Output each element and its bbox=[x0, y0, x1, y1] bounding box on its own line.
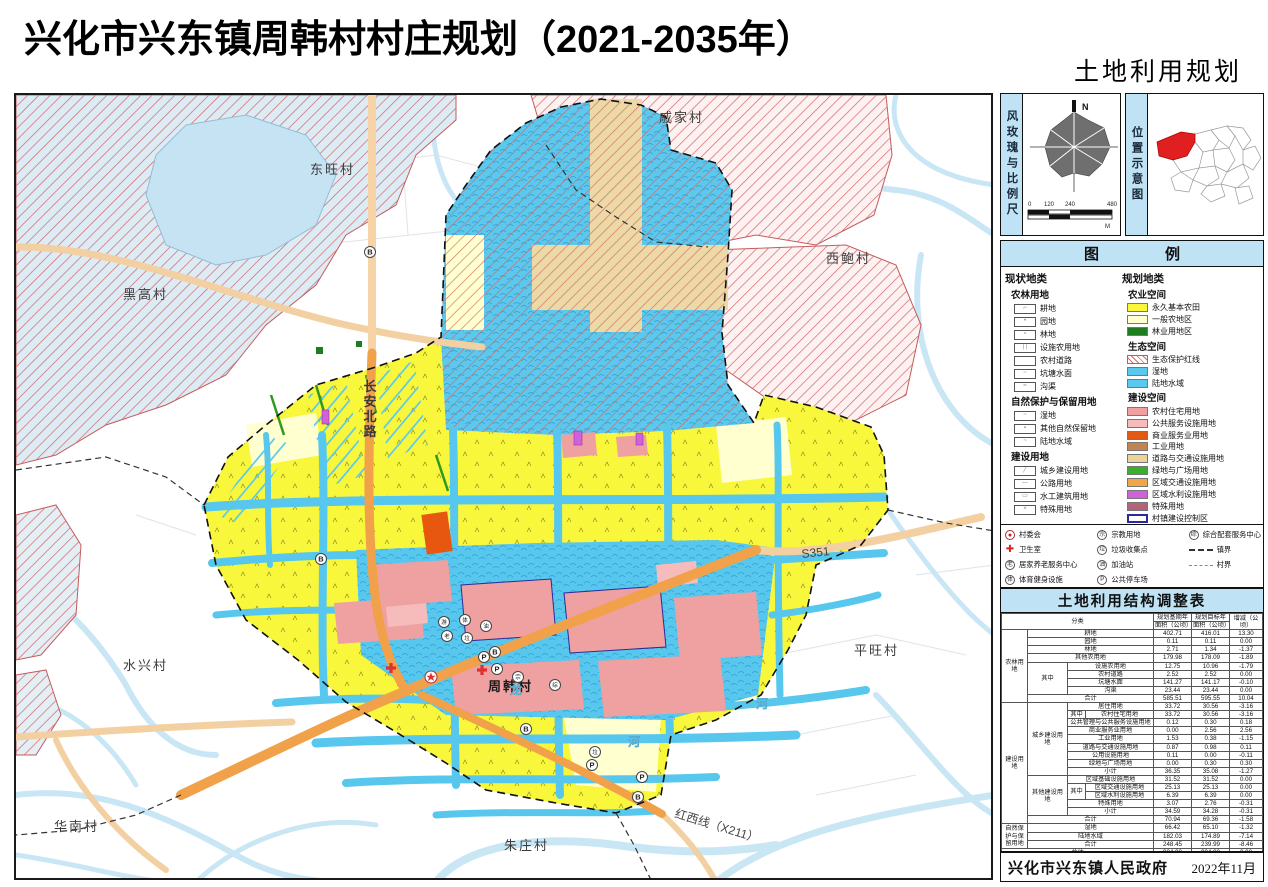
legend-point-item: 老居家养老服务中心 bbox=[1005, 559, 1097, 571]
table-cell: -1.37 bbox=[1230, 646, 1263, 654]
legend-group-title: 农业空间 bbox=[1128, 287, 1260, 301]
table-cell: 公共管理与公共服务设施用地 bbox=[1068, 719, 1154, 727]
table-cell: 湿地 bbox=[1028, 824, 1154, 832]
legend-item: 陆地水域 bbox=[1127, 377, 1260, 389]
table-cell: 0.30 bbox=[1192, 719, 1230, 727]
land-use-table-panel: 土地利用结构调整表 分类规划基期年规划目标年增减（公顷）面积（公顷）面积（公顷）… bbox=[1000, 588, 1264, 852]
table-cell: -1.15 bbox=[1230, 735, 1263, 743]
table-cell: 坑塘水面 bbox=[1068, 678, 1154, 686]
location-panel-body bbox=[1147, 94, 1263, 235]
table-cell: 0.00 bbox=[1230, 638, 1263, 646]
legend-item: 农村住宅用地 bbox=[1127, 405, 1260, 417]
legend-swatch: ⌐ bbox=[1014, 304, 1036, 314]
scale-tick: 120 bbox=[1044, 202, 1055, 208]
table-row: 林地2.711.34-1.37 bbox=[1002, 646, 1263, 654]
map-river-label: 龙 bbox=[510, 682, 522, 697]
table-row: 自然保护与保留用地湿地66.4265.10-1.32 bbox=[1002, 824, 1263, 832]
table-cell: 402.71 bbox=[1154, 630, 1192, 638]
legend-point-label: 村委会 bbox=[1019, 530, 1041, 540]
legend-point-symbol bbox=[1189, 549, 1213, 551]
scale-tick: 0 bbox=[1028, 202, 1032, 208]
map-point-facility: 宗 bbox=[513, 672, 524, 683]
table-cell: 0.12 bbox=[1154, 719, 1192, 727]
table-cell: 34.28 bbox=[1192, 808, 1230, 816]
legend-point-symbols: ●村委会✚卫生室老居家养老服务中心体体育健身设施游小游园/广场宗宗教用地垃垃圾收… bbox=[1001, 524, 1263, 588]
legend-swatch: ~ bbox=[1014, 437, 1036, 447]
table-row: 陆地水域182.03174.89-7.14 bbox=[1002, 832, 1263, 840]
table-cell: 其中 bbox=[1068, 783, 1086, 799]
legend-title-right: 例 bbox=[1165, 243, 1180, 264]
legend-points-column: 综综合配套服务中心镇界村界 bbox=[1189, 529, 1261, 588]
table-cell: 0.87 bbox=[1154, 743, 1192, 751]
legend-planned-title: 规划地类 bbox=[1122, 271, 1260, 286]
legend-item-label: 陆地水域 bbox=[1040, 436, 1072, 447]
legend-swatch bbox=[1127, 367, 1148, 376]
page-title: 兴化市兴东镇周韩村村庄规划（2021-2035年） bbox=[24, 8, 814, 63]
table-cell: 园地 bbox=[1028, 638, 1154, 646]
legend-swatch bbox=[1014, 356, 1036, 366]
legend-item: ~坑塘水面 bbox=[1014, 367, 1122, 380]
table-row: 其他建设用地区域基础设施用地31.5231.520.00 bbox=[1002, 775, 1263, 783]
legend-point-symbol bbox=[1189, 565, 1213, 566]
legend-current-title: 现状地类 bbox=[1005, 271, 1122, 286]
table-cell: 0.00 bbox=[1230, 670, 1263, 678]
legend-swatch: ~ bbox=[1014, 369, 1036, 379]
legend-item: ~陆地水域 bbox=[1014, 435, 1122, 448]
location-minimap bbox=[1147, 94, 1263, 234]
footer-panel: 兴化市兴东镇人民政府 2022年11月 bbox=[1000, 852, 1264, 882]
table-cell: 其他建设用地 bbox=[1028, 775, 1068, 815]
legend-point-symbol: 宗 bbox=[1097, 530, 1107, 540]
legend-item-label: 农村住宅用地 bbox=[1152, 406, 1200, 417]
map-village-label: 戚家村 bbox=[659, 110, 704, 125]
legend-point-item: 垃垃圾收集点 bbox=[1097, 544, 1188, 556]
table-cell: 耕地 bbox=[1028, 630, 1154, 638]
table-cell: -3.16 bbox=[1230, 703, 1263, 711]
table-row: 合计585.51595.5510.04 bbox=[1002, 694, 1263, 702]
table-cell: 23.44 bbox=[1192, 686, 1230, 694]
table-cell: 0.00 bbox=[1230, 775, 1263, 783]
legend-item-label: 其他自然保留地 bbox=[1040, 423, 1096, 434]
legend-point-item: P公共停车场 bbox=[1097, 574, 1188, 586]
table-cell: -0.31 bbox=[1230, 800, 1263, 808]
legend-point-label: 卫生室 bbox=[1019, 545, 1041, 555]
map-point-facility: 油 bbox=[481, 621, 492, 632]
legend-item-label: 农村道路 bbox=[1040, 355, 1072, 366]
svg-text:P: P bbox=[639, 773, 644, 782]
map-point-facility: 垃 bbox=[462, 633, 473, 644]
map-point-parking: P bbox=[587, 760, 598, 771]
issue-date: 2022年11月 bbox=[1191, 858, 1256, 877]
table-title: 土地利用结构调整表 bbox=[1001, 589, 1263, 613]
legend-item-label: 商业服务业用地 bbox=[1152, 430, 1208, 441]
legend-planned-column: 规划地类 农业空间永久基本农田一般农地区林业用地区生态空间生态保护红线湿地陆地水… bbox=[1122, 270, 1260, 524]
legend-item-label: 村镇建设控制区 bbox=[1152, 513, 1208, 524]
compass-panel-body: N 0120240480 M bbox=[1022, 94, 1120, 235]
legend-swatch: — bbox=[1014, 479, 1036, 489]
legend-item: —公路用地 bbox=[1014, 477, 1122, 490]
svg-text:垃: 垃 bbox=[592, 748, 598, 756]
table-cell: 陆地水域 bbox=[1028, 832, 1154, 840]
legend-panel: 图 例 现状地类 农林用地⌐耕地•园地∘林地| |设施农用地农村道路~坑塘水面≈… bbox=[1000, 240, 1264, 588]
compass-scale-panel: 风玫瑰与比例尺 N 0120240480 M bbox=[1000, 93, 1121, 236]
legend-point-label: 村界 bbox=[1217, 560, 1232, 570]
legend-item: 生态保护红线 bbox=[1127, 354, 1260, 366]
table-cell: 农村住宅用地 bbox=[1086, 711, 1154, 719]
legend-item-label: 工业用地 bbox=[1152, 441, 1184, 452]
legend-swatch bbox=[1127, 327, 1148, 336]
legend-item-label: 公共服务设施用地 bbox=[1152, 418, 1216, 429]
legend-item-label: 设施农用地 bbox=[1040, 342, 1080, 353]
table-cell: 2.56 bbox=[1230, 727, 1263, 735]
table-cell: 2.71 bbox=[1154, 646, 1192, 654]
map-village-label: 朱庄村 bbox=[504, 838, 549, 853]
legend-swatch: | | bbox=[1014, 343, 1036, 353]
legend-group-title: 农林用地 bbox=[1011, 287, 1122, 301]
svg-text:体: 体 bbox=[462, 616, 468, 624]
table-cell: 10.96 bbox=[1192, 662, 1230, 670]
table-row: 建设用地城乡建设用地居住用地33.7230.56-3.16 bbox=[1002, 703, 1263, 711]
legend-point-item: 镇界 bbox=[1189, 544, 1261, 556]
table-cell: 商业服务业用地 bbox=[1068, 727, 1154, 735]
legend-item-label: 城乡建设用地 bbox=[1040, 465, 1088, 476]
table-cell: 沟渠 bbox=[1068, 686, 1154, 694]
table-cell: 道路与交通设施用地 bbox=[1068, 743, 1154, 751]
table-cell: 特殊用地 bbox=[1068, 800, 1154, 808]
table-cell: 36.35 bbox=[1154, 767, 1192, 775]
legend-item-label: 道路与交通设施用地 bbox=[1152, 453, 1224, 464]
table-cell: 10.04 bbox=[1230, 694, 1263, 702]
legend-swatch: • bbox=[1014, 317, 1036, 327]
table-cell: -0.10 bbox=[1230, 678, 1263, 686]
legend-group-title: 生态空间 bbox=[1128, 339, 1260, 353]
legend-item-label: 湿地 bbox=[1152, 366, 1168, 377]
legend-point-item: ●村委会 bbox=[1005, 529, 1097, 541]
table-cell: 0.30 bbox=[1230, 759, 1263, 767]
table-cell: 65.10 bbox=[1192, 824, 1230, 832]
legend-point-label: 居家养老服务中心 bbox=[1019, 560, 1077, 570]
legend-point-symbol: P bbox=[1097, 575, 1107, 585]
scale-tick: 240 bbox=[1065, 202, 1076, 208]
legend-swatch bbox=[1127, 514, 1148, 523]
table-cell: 178.09 bbox=[1192, 654, 1230, 662]
legend-body: 现状地类 农林用地⌐耕地•园地∘林地| |设施农用地农村道路~坑塘水面≈沟渠自然… bbox=[1001, 267, 1263, 524]
legend-item: 区域水利设施用地 bbox=[1127, 489, 1260, 501]
table-cell: -1.79 bbox=[1230, 662, 1263, 670]
table-cell: 城乡建设用地 bbox=[1028, 703, 1068, 776]
svg-text:B: B bbox=[523, 725, 529, 734]
table-cell: 0.00 bbox=[1230, 792, 1263, 800]
table-cell: 其他农用地 bbox=[1028, 654, 1154, 662]
table-cell: 174.89 bbox=[1192, 832, 1230, 840]
legend-point-symbol: ● bbox=[1005, 530, 1015, 540]
table-cell: -1.58 bbox=[1230, 816, 1263, 824]
table-cell: 25.13 bbox=[1192, 783, 1230, 791]
legend-item-label: 永久基本农田 bbox=[1152, 302, 1200, 313]
table-cell: -0.11 bbox=[1230, 751, 1263, 759]
table-header-base-year: 规划基期年 bbox=[1154, 614, 1192, 622]
legend-item: 湿地 bbox=[1127, 366, 1260, 378]
map-point-facility: 体 bbox=[460, 615, 471, 626]
table-cell: 34.59 bbox=[1154, 808, 1192, 816]
table-cell: 合计 bbox=[1028, 694, 1154, 702]
table-cell: 农林用地 bbox=[1002, 630, 1028, 703]
table-cell: 182.03 bbox=[1154, 832, 1192, 840]
legend-item-label: 湿地 bbox=[1040, 410, 1056, 421]
legend-item: | |设施农用地 bbox=[1014, 341, 1122, 354]
land-use-adjustment-table: 分类规划基期年规划目标年增减（公顷）面积（公顷）面积（公顷） 农林用地耕地402… bbox=[1001, 613, 1263, 852]
table-cell: 2.76 bbox=[1192, 800, 1230, 808]
map-river-label: 河 bbox=[755, 696, 768, 711]
legend-item: •园地 bbox=[1014, 315, 1122, 328]
map-village-committee-icon bbox=[425, 671, 437, 683]
legend-swatch bbox=[1127, 431, 1148, 440]
table-cell: 3.07 bbox=[1154, 800, 1192, 808]
table-cell: 农村道路 bbox=[1068, 670, 1154, 678]
table-cell: 0.11 bbox=[1230, 743, 1263, 751]
map-village-label: 西鲍村 bbox=[826, 251, 871, 266]
legend-group-title: 建设用地 bbox=[1011, 449, 1122, 463]
table-cell: 30.56 bbox=[1192, 711, 1230, 719]
table-cell: -1.27 bbox=[1230, 767, 1263, 775]
table-cell: -0.31 bbox=[1230, 808, 1263, 816]
scale-bar bbox=[1028, 210, 1112, 219]
table-cell: 1.53 bbox=[1154, 735, 1192, 743]
legend-swatch: ▪ bbox=[1014, 424, 1036, 434]
legend-point-label: 宗教用地 bbox=[1111, 530, 1140, 540]
legend-group-title: 建设空间 bbox=[1128, 390, 1260, 404]
map-village-label: 华南村 bbox=[54, 819, 99, 834]
legend-point-symbol: 综 bbox=[1189, 530, 1199, 540]
map-point-bus-stop: B bbox=[316, 554, 327, 565]
wind-rose: N 0120240480 M bbox=[1022, 94, 1120, 234]
table-cell: -1.89 bbox=[1230, 654, 1263, 662]
table-cell: 6.39 bbox=[1154, 792, 1192, 800]
legend-point-item: ✚卫生室 bbox=[1005, 544, 1097, 556]
svg-text:P: P bbox=[481, 653, 486, 662]
table-cell: 416.01 bbox=[1192, 630, 1230, 638]
legend-point-item: 体体育健身设施 bbox=[1005, 574, 1097, 586]
table-row: 农林用地耕地402.71416.0113.30 bbox=[1002, 630, 1263, 638]
map-point-bus-stop: B bbox=[521, 724, 532, 735]
legend-swatch bbox=[1127, 478, 1148, 487]
legend-point-item: 综综合配套服务中心 bbox=[1189, 529, 1261, 541]
legend-swatch: ∘ bbox=[1014, 330, 1036, 340]
legend-point-item: 油加油站 bbox=[1097, 559, 1188, 571]
table-header-classification: 分类 bbox=[1002, 614, 1154, 630]
table-cell: 30.56 bbox=[1192, 703, 1230, 711]
table-cell: 合计 bbox=[1028, 816, 1154, 824]
map-point-bus-stop: B bbox=[633, 792, 644, 803]
legend-swatch bbox=[1127, 315, 1148, 324]
table-cell: -3.16 bbox=[1230, 711, 1263, 719]
legend-point-symbol: 老 bbox=[1005, 560, 1015, 570]
legend-item-label: 生态保护红线 bbox=[1152, 354, 1200, 365]
legend-point-symbol: 垃 bbox=[1097, 545, 1107, 555]
legend-item-label: 绿地与广场用地 bbox=[1152, 465, 1208, 476]
table-cell: 35.08 bbox=[1192, 767, 1230, 775]
legend-item: ≈沟渠 bbox=[1014, 380, 1122, 393]
table-cell: 179.98 bbox=[1154, 654, 1192, 662]
svg-text:宗: 宗 bbox=[515, 673, 521, 681]
table-cell: 公用设施用地 bbox=[1068, 751, 1154, 759]
table-cell: -8.46 bbox=[1230, 840, 1263, 848]
svg-text:油: 油 bbox=[483, 622, 489, 630]
table-cell: 13.30 bbox=[1230, 630, 1263, 638]
legend-swatch: ~ bbox=[1014, 411, 1036, 421]
svg-text:B: B bbox=[367, 248, 373, 257]
legend-point-symbol: 体 bbox=[1005, 575, 1015, 585]
legend-item: ⌐耕地 bbox=[1014, 302, 1122, 315]
land-use-map: 东旺村戚家村西鲍村黑高村水兴村华南村朱庄村平旺村周韩村长安北路S351红西线（X… bbox=[14, 93, 993, 880]
legend-swatch: ╱ bbox=[1014, 466, 1036, 476]
legend-item-label: 区域水利设施用地 bbox=[1152, 489, 1216, 500]
legend-item: 工业用地 bbox=[1127, 441, 1260, 453]
legend-item: 农村道路 bbox=[1014, 354, 1122, 367]
table-cell: 0.00 bbox=[1230, 783, 1263, 791]
map-point-facility: 游 bbox=[439, 617, 450, 628]
table-cell: 0.11 bbox=[1154, 751, 1192, 759]
table-cell: 合计 bbox=[1028, 840, 1154, 848]
legend-item-label: 特殊用地 bbox=[1040, 504, 1072, 515]
table-cell: 1.34 bbox=[1192, 646, 1230, 654]
legend-item: ×特殊用地 bbox=[1014, 503, 1122, 516]
legend-point-label: 综合配套服务中心 bbox=[1203, 530, 1261, 540]
svg-text:N: N bbox=[1082, 102, 1089, 112]
legend-item-label: 水工建筑用地 bbox=[1040, 491, 1088, 502]
table-row: 其他农用地179.98178.09-1.89 bbox=[1002, 654, 1263, 662]
legend-swatch bbox=[1127, 407, 1148, 416]
legend-header: 图 例 bbox=[1001, 241, 1263, 267]
map-road-label: 长安北路 bbox=[363, 379, 377, 439]
legend-points-column: ●村委会✚卫生室老居家养老服务中心体体育健身设施游小游园/广场 bbox=[1005, 529, 1097, 588]
legend-swatch: ▭ bbox=[1014, 492, 1036, 502]
svg-text:B: B bbox=[635, 793, 641, 802]
table-header-base-area: 面积（公顷） bbox=[1154, 622, 1192, 630]
legend-item: 永久基本农田 bbox=[1127, 302, 1260, 314]
table-header-target-year: 规划目标年 bbox=[1192, 614, 1230, 622]
table-cell: 0.00 bbox=[1154, 727, 1192, 735]
table-cell: 0.11 bbox=[1192, 638, 1230, 646]
table-cell: 0.00 bbox=[1154, 759, 1192, 767]
legend-current-groups: 农林用地⌐耕地•园地∘林地| |设施农用地农村道路~坑塘水面≈沟渠自然保护与保留… bbox=[1005, 287, 1122, 516]
legend-swatch bbox=[1127, 442, 1148, 451]
legend-item-label: 沟渠 bbox=[1040, 381, 1056, 392]
map-river-label: 河 bbox=[627, 734, 640, 749]
location-panel-label: 位置示意图 bbox=[1129, 126, 1145, 204]
table-header-target-area: 面积（公顷） bbox=[1192, 622, 1230, 630]
scale-tick-labels: 0120240480 bbox=[1028, 202, 1118, 208]
compass-panel-strip: 风玫瑰与比例尺 bbox=[1001, 94, 1023, 235]
legend-point-symbol: ✚ bbox=[1005, 545, 1015, 555]
table-cell: 0.00 bbox=[1230, 686, 1263, 694]
table-row: 园地0.110.110.00 bbox=[1002, 638, 1263, 646]
map-village-label: 黑高村 bbox=[123, 287, 168, 302]
table-cell: 区域水利设施用地 bbox=[1086, 792, 1154, 800]
legend-point-item: 村界 bbox=[1189, 559, 1261, 571]
table-cell: 其中 bbox=[1028, 662, 1068, 694]
table-cell: 595.55 bbox=[1192, 694, 1230, 702]
table-cell: -1.32 bbox=[1230, 824, 1263, 832]
legend-title-left: 图 bbox=[1084, 243, 1099, 264]
map-point-bus-stop: B bbox=[365, 247, 376, 258]
table-cell: 林地 bbox=[1028, 646, 1154, 654]
map-point-parking: P bbox=[479, 652, 490, 663]
legend-planned-groups: 农业空间永久基本农田一般农地区林业用地区生态空间生态保护红线湿地陆地水域建设空间… bbox=[1122, 287, 1260, 524]
legend-item: 绿地与广场用地 bbox=[1127, 465, 1260, 477]
legend-item: 特殊用地 bbox=[1127, 500, 1260, 512]
plan-sheet: { "page": { "title": "兴化市兴东镇周韩村村庄规划（2021… bbox=[0, 0, 1268, 887]
legend-swatch bbox=[1127, 355, 1148, 364]
table-cell: 141.27 bbox=[1154, 678, 1192, 686]
legend-points-column: 宗宗教用地垃垃圾收集点油加油站P公共停车场B城乡公交停靠点 bbox=[1097, 529, 1188, 588]
legend-point-label: 镇界 bbox=[1217, 545, 1232, 555]
legend-point-symbol: 油 bbox=[1097, 560, 1107, 570]
legend-item-label: 一般农地区 bbox=[1152, 314, 1192, 325]
legend-current-column: 现状地类 农林用地⌐耕地•园地∘林地| |设施农用地农村道路~坑塘水面≈沟渠自然… bbox=[1005, 270, 1122, 524]
scale-unit: M bbox=[1105, 224, 1110, 230]
legend-item-label: 园地 bbox=[1040, 316, 1056, 327]
legend-item: ▭水工建筑用地 bbox=[1014, 490, 1122, 503]
location-panel-strip: 位置示意图 bbox=[1126, 94, 1148, 235]
table-row: 合计248.45239.99-8.46 bbox=[1002, 840, 1263, 848]
table-cell: 33.72 bbox=[1154, 703, 1192, 711]
table-cell: 23.44 bbox=[1154, 686, 1192, 694]
svg-text:老: 老 bbox=[444, 632, 450, 640]
legend-item: 一般农地区 bbox=[1127, 314, 1260, 326]
legend-swatch: × bbox=[1014, 505, 1036, 515]
table-cell: 31.52 bbox=[1154, 775, 1192, 783]
map-point-parking: P bbox=[492, 664, 503, 675]
legend-point-item: 宗宗教用地 bbox=[1097, 529, 1188, 541]
svg-text:B: B bbox=[492, 648, 498, 657]
svg-text:P: P bbox=[494, 665, 499, 674]
table-cell: 0.11 bbox=[1154, 638, 1192, 646]
table-cell: 33.72 bbox=[1154, 711, 1192, 719]
table-cell: 585.51 bbox=[1154, 694, 1192, 702]
legend-item: 林业用地区 bbox=[1127, 326, 1260, 338]
map-point-parking: P bbox=[637, 772, 648, 783]
table-cell: 6.39 bbox=[1192, 792, 1230, 800]
table-cell: -7.14 bbox=[1230, 832, 1263, 840]
table-cell: 69.36 bbox=[1192, 816, 1230, 824]
compass-panel-label: 风玫瑰与比例尺 bbox=[1004, 110, 1020, 219]
svg-text:B: B bbox=[318, 555, 324, 564]
legend-swatch bbox=[1127, 466, 1148, 475]
legend-point-label: 垃圾收集点 bbox=[1111, 545, 1147, 555]
table-cell: 31.52 bbox=[1192, 775, 1230, 783]
svg-text:综: 综 bbox=[552, 681, 558, 689]
table-cell: 工业用地 bbox=[1068, 735, 1154, 743]
table-cell: 2.52 bbox=[1192, 670, 1230, 678]
legend-item-label: 公路用地 bbox=[1040, 478, 1072, 489]
legend-swatch bbox=[1127, 419, 1148, 428]
legend-item-label: 特殊用地 bbox=[1152, 501, 1184, 512]
table-cell: 其中 bbox=[1068, 711, 1086, 719]
legend-item: ~湿地 bbox=[1014, 409, 1122, 422]
table-cell: 0.18 bbox=[1230, 719, 1263, 727]
legend-item-label: 林业用地区 bbox=[1152, 326, 1192, 337]
table-cell: 区域基础设施用地 bbox=[1068, 775, 1154, 783]
scale-tick: 480 bbox=[1107, 202, 1118, 208]
legend-item: ╱城乡建设用地 bbox=[1014, 464, 1122, 477]
table-row: 合计70.9469.36-1.58 bbox=[1002, 816, 1263, 824]
table-cell: 239.99 bbox=[1192, 840, 1230, 848]
table-cell: 248.45 bbox=[1154, 840, 1192, 848]
table-cell: 建设用地 bbox=[1002, 703, 1028, 824]
legend-item: 商业服务业用地 bbox=[1127, 429, 1260, 441]
legend-item-label: 陆地水域 bbox=[1152, 378, 1184, 389]
